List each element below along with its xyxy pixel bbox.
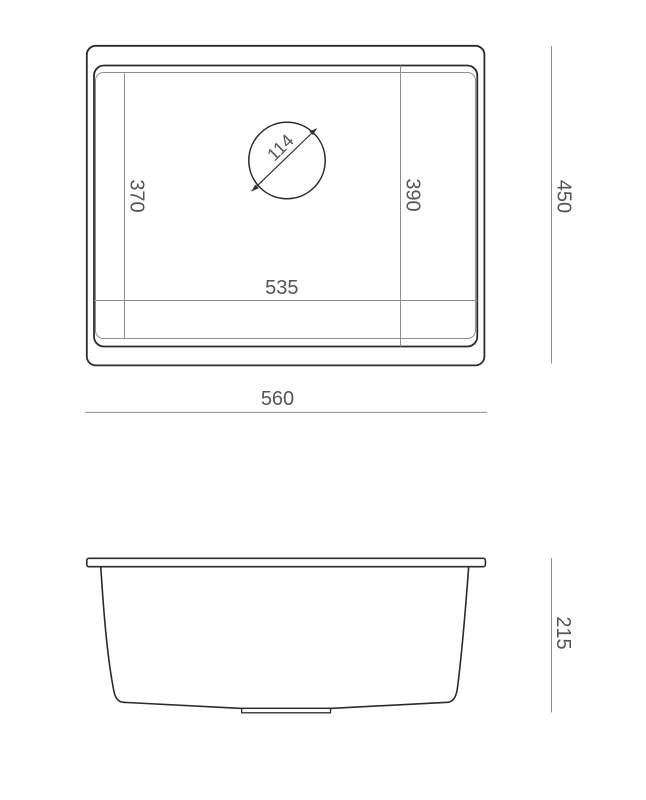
svg-text:390: 390 (402, 178, 424, 211)
svg-text:450: 450 (552, 180, 574, 213)
svg-text:535: 535 (265, 277, 298, 299)
svg-text:114: 114 (263, 130, 297, 164)
svg-text:370: 370 (125, 179, 147, 212)
svg-text:560: 560 (261, 388, 294, 410)
svg-text:215: 215 (552, 616, 574, 649)
